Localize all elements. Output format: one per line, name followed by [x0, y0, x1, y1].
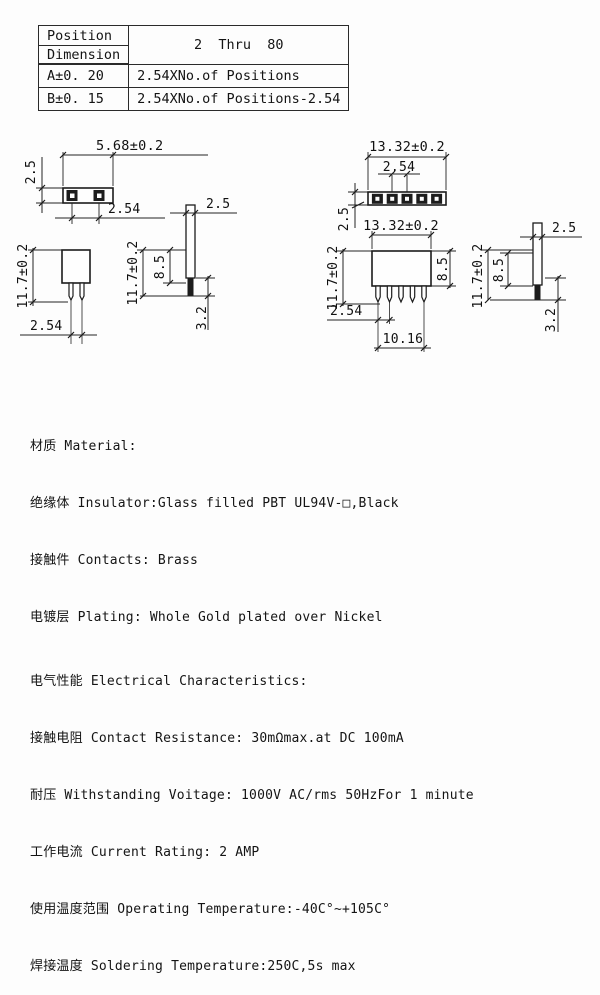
dim-label-tail: 3.2: [195, 306, 210, 330]
spec-withstanding-voltage: 耐压 Withstanding Voitage: 1000V AC/rms 50…: [30, 786, 474, 805]
pin: [387, 286, 391, 302]
spec-contacts: 接触件 Contacts: Brass: [30, 551, 474, 570]
dim-label-height: 11.7±0.2: [126, 240, 141, 305]
spec-soldering-temperature: 焊接温度 Soldering Temperature:250C,5s max: [30, 957, 474, 976]
dim-label-tail: 3.2: [544, 308, 559, 332]
connector-body-side: [533, 223, 542, 285]
pin: [422, 286, 426, 302]
spec-contact-resistance: 接触电阻 Contact Resistance: 30mΩmax.at DC 1…: [30, 729, 474, 748]
electrical-title: 电气性能 Electrical Characteristics:: [30, 672, 474, 691]
spec-plating: 电镀层 Plating: Whole Gold plated over Nick…: [30, 608, 474, 627]
drawing-top-view-2pos: 5.68±0.2 2.5 2.54: [24, 138, 208, 224]
spec-current-rating: 工作电流 Current Rating: 2 AMP: [30, 843, 474, 862]
dim-label-span: 10.16: [383, 332, 424, 347]
drawing-side-view-right: 2.5 8.5 11.7±0.2 3.2: [471, 221, 582, 332]
connector-body-side: [186, 205, 195, 278]
dim-label-pitch: 2.54: [30, 319, 63, 334]
drawing-front-view-5pos: 13.32±0.2 11.7±0.2 8.5 2.54 10.16: [326, 218, 456, 352]
dim-label-depth: 2.5: [24, 160, 39, 184]
connector-body: [372, 251, 431, 286]
dim-label-body-height: 8.5: [153, 255, 168, 279]
pin: [410, 286, 414, 302]
drawing-side-view-left: 2.5 8.5 11.7±0.2 3.2: [126, 197, 237, 330]
dim-label-width: 5.68±0.2: [96, 138, 163, 154]
pin: [399, 286, 403, 302]
connector-body: [62, 250, 90, 283]
pin: [376, 286, 380, 302]
dim-label-width: 13.32±0.2: [363, 218, 439, 234]
spec-operating-temperature: 使用温度范围 Operating Temperature:-40C°~+105C…: [30, 900, 474, 919]
material-title: 材质 Material:: [30, 437, 474, 456]
dim-label-height: 11.7±0.2: [471, 243, 486, 308]
dim-label-body-height: 8.5: [492, 258, 507, 282]
dim-label-pitch: 2.54: [383, 160, 416, 175]
drawing-front-view-2pos: 11.7±0.2 2.54: [16, 243, 97, 344]
specifications-text: 材质 Material: 绝缘体 Insulator:Glass filled …: [30, 399, 474, 995]
pin: [69, 283, 73, 300]
dim-label-width: 13.32±0.2: [369, 139, 445, 155]
datasheet-page: { "table": { "position_label": "Position…: [0, 0, 600, 602]
pin: [80, 283, 84, 300]
spec-insulator: 绝缘体 Insulator:Glass filled PBT UL94V-□,B…: [30, 494, 474, 513]
dim-label-height: 11.7±0.2: [326, 245, 341, 310]
dim-label-pitch: 2.54: [330, 304, 363, 319]
dim-label-thickness: 2.5: [552, 221, 576, 236]
pin-tail: [188, 278, 194, 296]
dim-label-depth: 2.5: [337, 207, 352, 231]
dim-label-pitch: 2.54: [108, 202, 141, 217]
pin-tail: [535, 285, 541, 300]
dim-label-thickness: 2.5: [206, 197, 230, 212]
dim-label-height: 11.7±0.2: [16, 243, 31, 308]
dim-label-body-height: 8.5: [436, 257, 451, 281]
